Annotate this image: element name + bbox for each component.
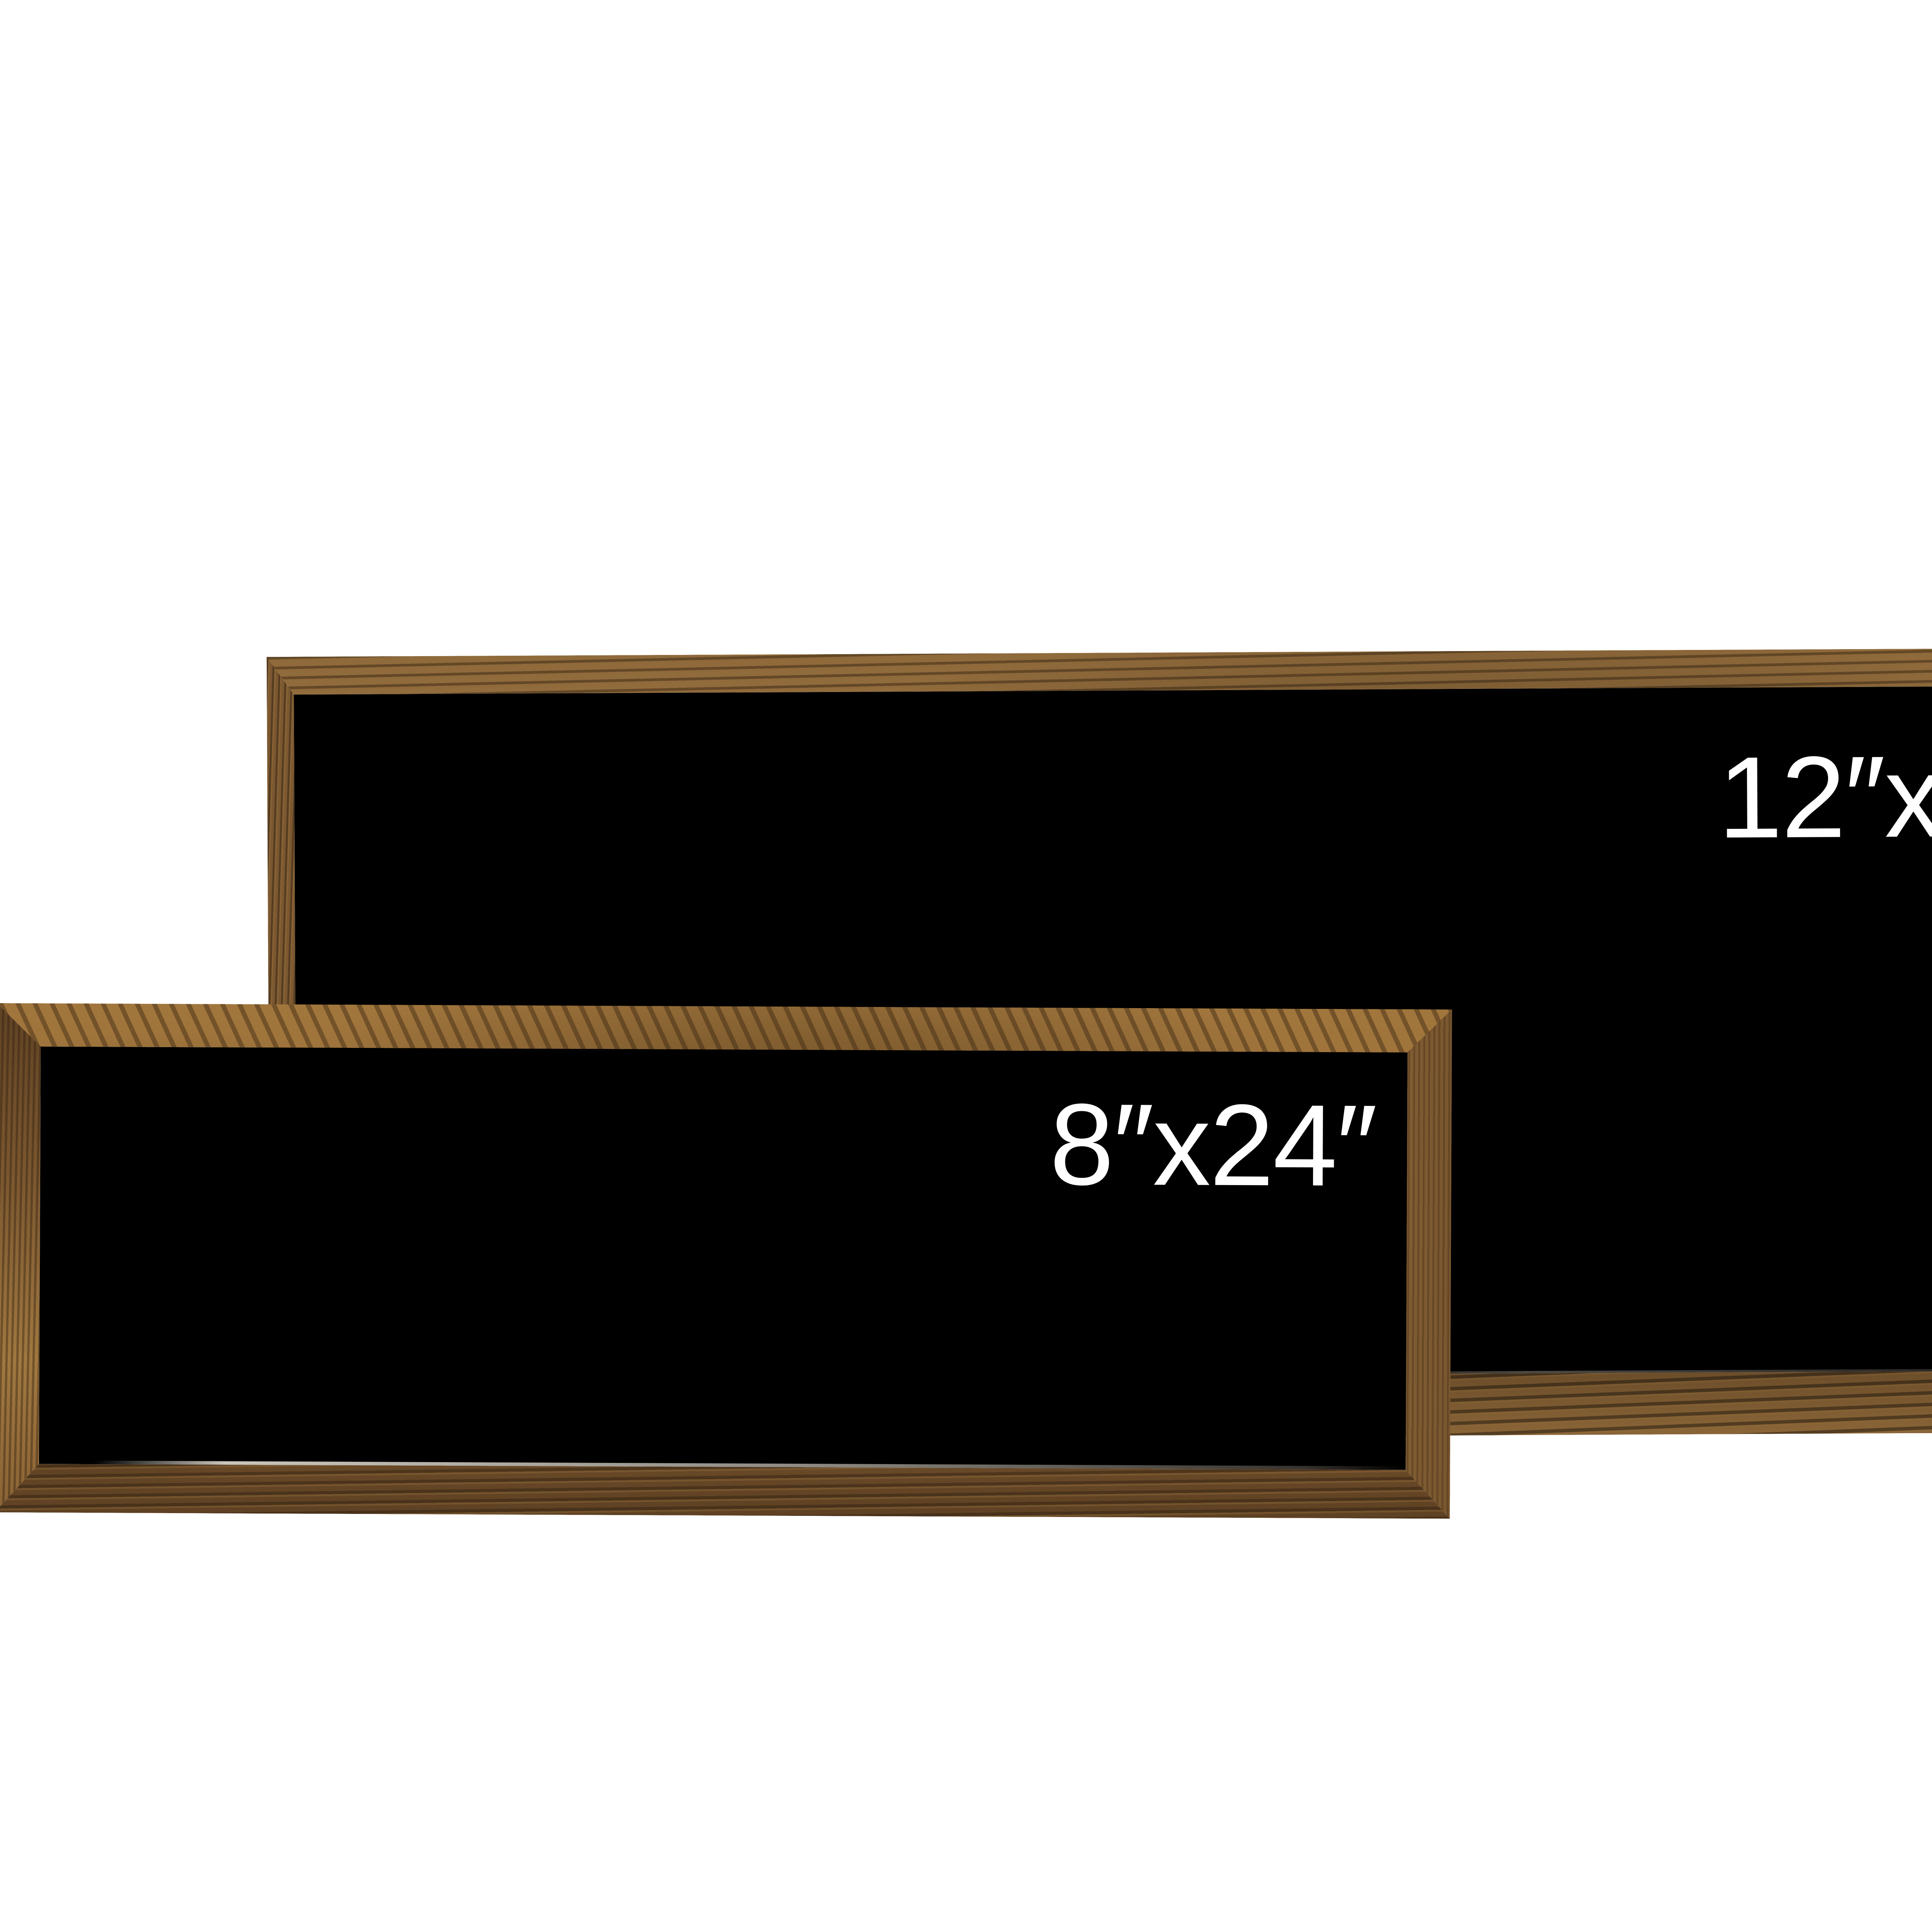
chalkboard-8x24: 8″x24″: [0, 1003, 1452, 1519]
size-label-12x32: 12″x32″: [1718, 738, 1932, 855]
product-photo-canvas: 12″x32″ 8″x24″: [0, 0, 1932, 1932]
size-label-8x24: 8″x24″: [1049, 1086, 1376, 1204]
chalkboard-surface-8x24: 8″x24″: [39, 1046, 1408, 1469]
